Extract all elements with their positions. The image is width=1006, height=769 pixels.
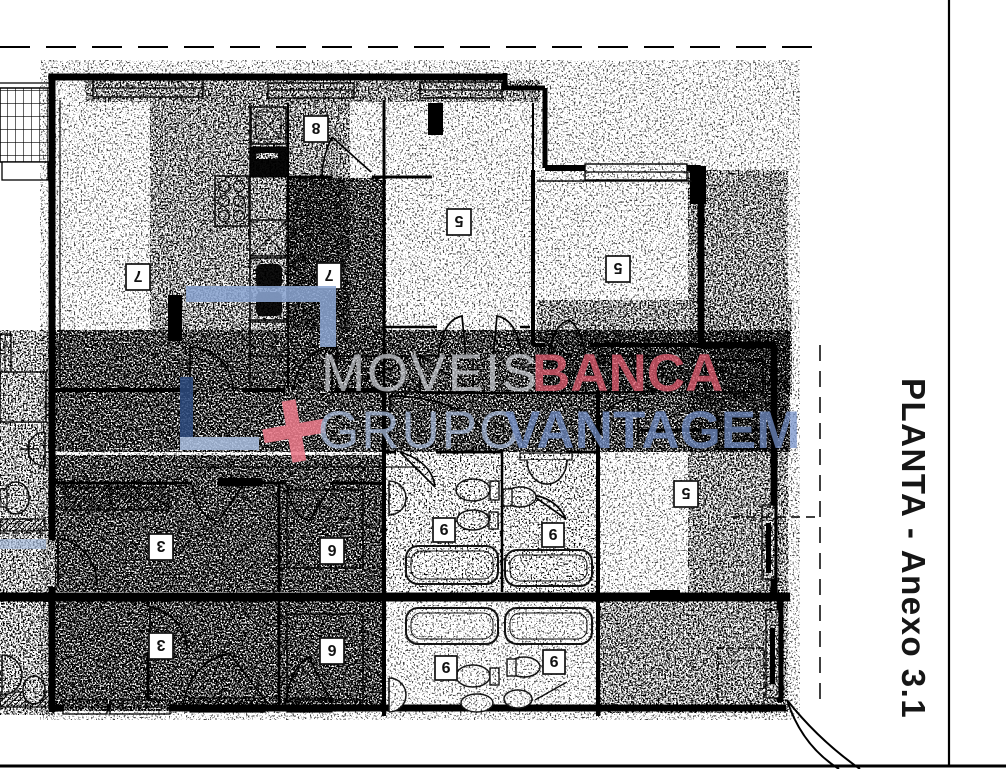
room-label-text: 9 bbox=[441, 658, 450, 675]
scanned-floorplan-page: PLANTA - Anexo 3.1 bbox=[0, 0, 1006, 769]
floorplan-canvas: PLANTA - Anexo 3.1 bbox=[0, 0, 1006, 769]
room-label: 5 bbox=[447, 209, 471, 235]
room-label-text: 9 bbox=[549, 652, 558, 669]
room-label: 6 bbox=[320, 638, 344, 664]
room-label-text: 8 bbox=[311, 119, 320, 136]
room-label: 3 bbox=[149, 633, 173, 659]
room-label: 9 bbox=[435, 656, 457, 680]
room-label: 9 bbox=[433, 518, 455, 542]
room-label: 5 bbox=[674, 481, 698, 507]
room-label: 7 bbox=[317, 263, 341, 289]
room-label-text: 6 bbox=[327, 541, 336, 558]
watermark-word-vantagem: VANTAGEM bbox=[505, 401, 800, 460]
room-label-text: 3 bbox=[156, 636, 165, 653]
watermark-word-grupo: GRUPO bbox=[318, 401, 522, 460]
watermark-word-moveis: MOVEIS bbox=[321, 344, 539, 403]
room-label-text: 7 bbox=[324, 266, 333, 283]
room-label: 8 bbox=[304, 116, 328, 142]
room-label: 5 bbox=[606, 256, 630, 282]
logo-stray-mark bbox=[0, 539, 46, 549]
sheet-title-vertical: PLANTA - Anexo 3.1 bbox=[895, 378, 932, 719]
room-label: 6 bbox=[320, 538, 344, 564]
logo-bracket-bottom-icon bbox=[180, 437, 259, 450]
room-label-text: 3 bbox=[156, 537, 165, 554]
room-label-text: 6 bbox=[327, 641, 336, 658]
watermark-word-banca: BANCA bbox=[532, 344, 723, 403]
room-label-text: 5 bbox=[613, 259, 622, 276]
room-label: 7 bbox=[126, 264, 150, 290]
room-label-text: 5 bbox=[681, 484, 690, 501]
room-label: 3 bbox=[149, 534, 173, 560]
room-label-text: 9 bbox=[439, 520, 448, 537]
room-label: 9 bbox=[543, 650, 565, 674]
room-label-text: 9 bbox=[548, 525, 557, 542]
room-label-text: 5 bbox=[454, 212, 463, 229]
room-label: 9 bbox=[542, 523, 564, 547]
room-label-text: 7 bbox=[133, 267, 142, 284]
